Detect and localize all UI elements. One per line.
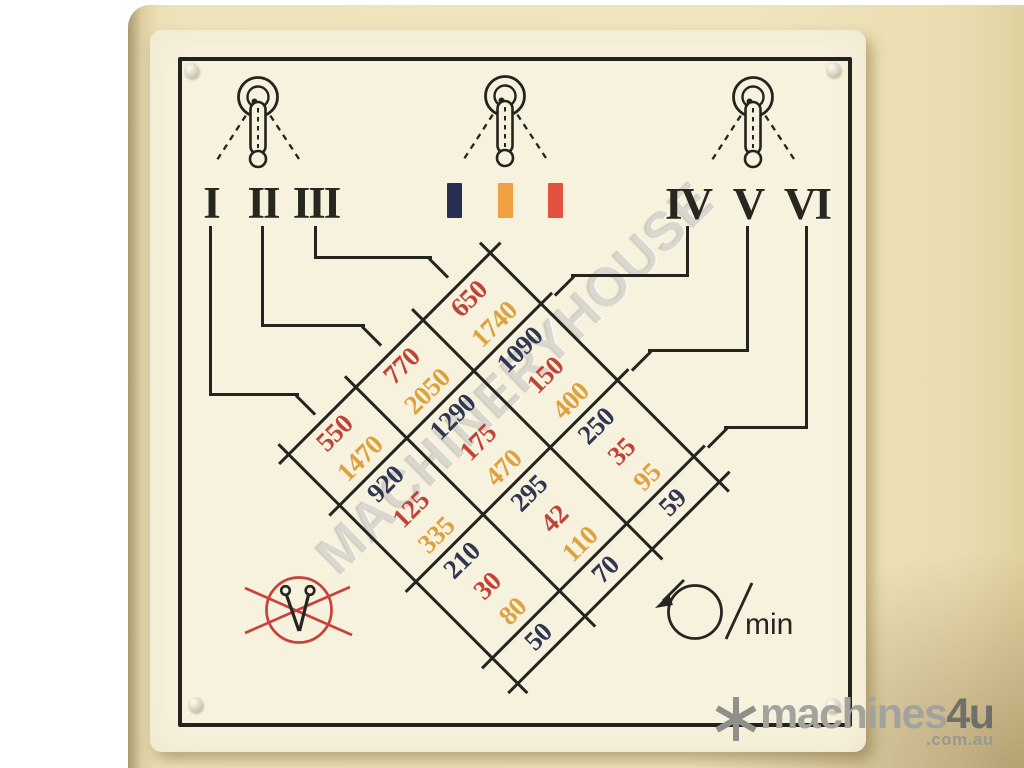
selector-line-VI-vertical — [805, 226, 808, 429]
selector-line-II-horizontal — [261, 324, 365, 327]
lever-icon-right — [693, 64, 813, 176]
selector-line-II-vertical — [261, 226, 264, 327]
rpm-unit-label: min — [745, 608, 793, 641]
photo-of-speed-plate: MACHINERYHOUSE I II III IV V VI — [0, 0, 1024, 768]
color-swatch-navy — [447, 183, 462, 218]
selector-line-III-horizontal — [314, 256, 432, 259]
position-label-I: I — [203, 177, 219, 229]
selector-line-I-horizontal — [209, 393, 299, 396]
selector-line-V-vertical — [746, 226, 749, 352]
no-mid-position-icon — [240, 556, 360, 666]
lever-icon-left — [198, 64, 318, 176]
color-swatch-orange — [498, 183, 513, 218]
logo-asterisk-icon — [714, 696, 758, 742]
color-swatch-red — [548, 183, 563, 218]
lever-icon-middle — [445, 63, 565, 175]
selector-line-VI-horizontal — [724, 426, 808, 429]
selector-line-I-vertical — [209, 226, 212, 396]
position-label-VI: VI — [784, 178, 830, 230]
screw-top-right — [826, 62, 841, 77]
screw-bottom-left — [188, 697, 203, 712]
position-label-IV: IV — [665, 178, 711, 230]
position-label-II: II — [247, 177, 278, 229]
screw-top-left — [184, 63, 199, 78]
watermark-logo: machines4u .com.au — [714, 692, 1014, 752]
position-label-V: V — [733, 178, 764, 230]
selector-line-IV-horizontal — [571, 274, 689, 277]
selector-line-V-horizontal — [648, 349, 749, 352]
selector-line-III-vertical — [314, 226, 317, 259]
selector-line-IV-vertical — [686, 226, 689, 277]
logo-domain: .com.au — [926, 730, 994, 750]
position-label-III: III — [293, 177, 340, 229]
logo-brand: machines — [760, 690, 946, 738]
rpm-icon: min — [653, 570, 803, 650]
